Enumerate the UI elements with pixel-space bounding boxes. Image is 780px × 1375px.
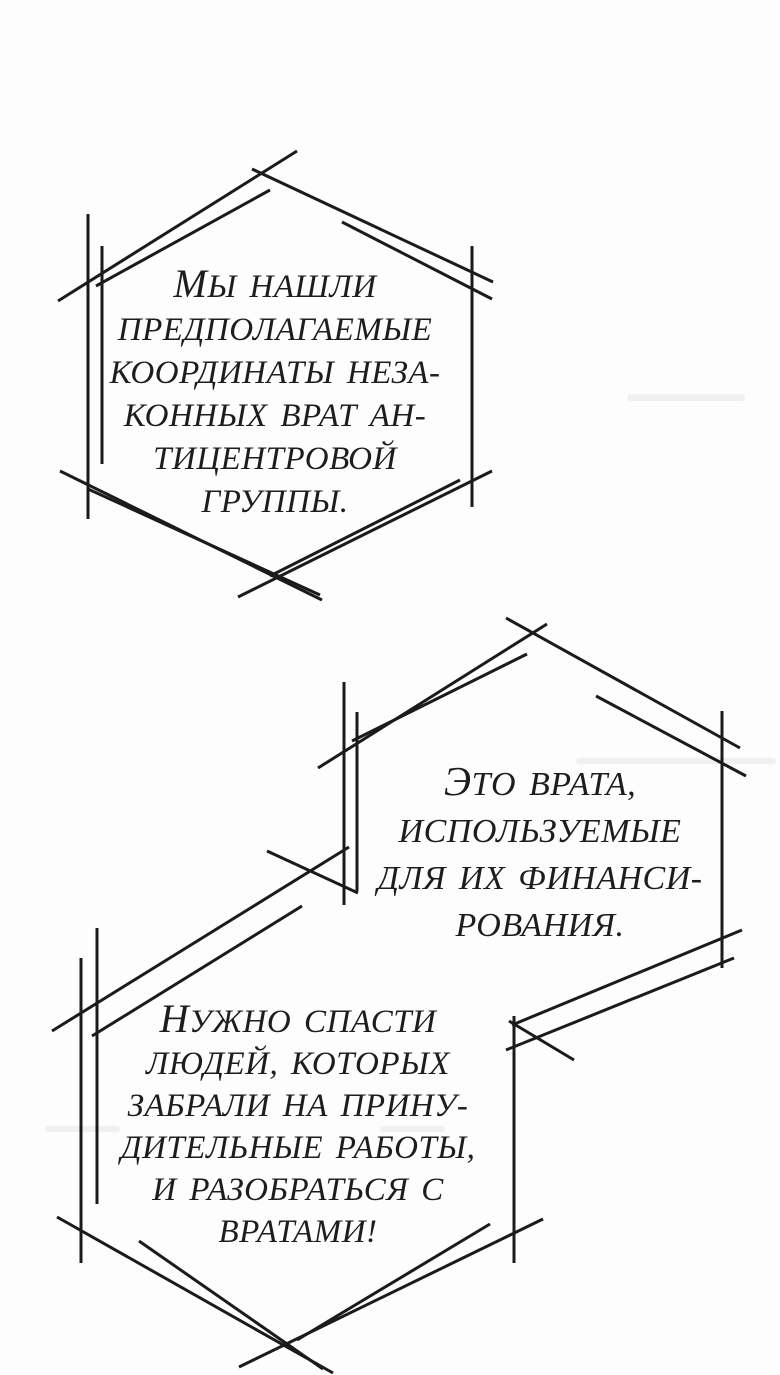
speech-bubble-1: МЫ НАШЛИ ПРЕДПОЛАГАЕМЫЕ КООРДИНАТЫ НЕЗА-…	[25, 262, 525, 524]
bubble-2-line-3: ДЛЯ ИХ ФИНАНСИ-	[290, 855, 780, 902]
bubble-1-line-2: ПРЕДПОЛАГАЕМЫЕ	[25, 309, 525, 352]
bubble-3-line-5: И РАЗОБРАТЬСЯ С	[48, 1169, 548, 1211]
bubble-3-line-6: ВРАТАМИ!	[48, 1211, 548, 1253]
scan-artifact	[576, 758, 776, 764]
scan-artifact	[380, 1126, 445, 1132]
bubble-2-line-2: ИСПОЛЬЗУЕМЫЕ	[290, 808, 780, 855]
bubble-2-line-4: РОВАНИЯ.	[290, 902, 780, 949]
bubble-3-line-3: ЗАБРАЛИ НА ПРИНУ-	[48, 1085, 548, 1127]
bubble-3-line-2: ЛЮДЕЙ, КОТОРЫХ	[48, 1043, 548, 1085]
bubble-3-line-1: НУЖНО СПАСТИ	[48, 998, 548, 1043]
speech-bubble-3: НУЖНО СПАСТИ ЛЮДЕЙ, КОТОРЫХ ЗАБРАЛИ НА П…	[48, 998, 548, 1253]
bubble-1-line-6: ГРУППЫ.	[25, 481, 525, 524]
scan-artifact	[627, 394, 745, 401]
bubble-1-line-3: КООРДИНАТЫ НЕЗА-	[25, 352, 525, 395]
manga-panel: МЫ НАШЛИ ПРЕДПОЛАГАЕМЫЕ КООРДИНАТЫ НЕЗА-…	[0, 0, 780, 1375]
scan-artifact	[45, 1126, 120, 1132]
bubble-1-line-1: МЫ НАШЛИ	[25, 262, 525, 309]
bubble-3-line-4: ДИТЕЛЬНЫЕ РАБОТЫ,	[48, 1127, 548, 1169]
bubble-2-line-1: ЭТО ВРАТА,	[290, 758, 780, 808]
bubble-1-line-5: ТИЦЕНТРОВОЙ	[25, 438, 525, 481]
speech-bubble-2: ЭТО ВРАТА, ИСПОЛЬЗУЕМЫЕ ДЛЯ ИХ ФИНАНСИ- …	[290, 758, 780, 949]
bubble-1-line-4: КОННЫХ ВРАТ АН-	[25, 395, 525, 438]
